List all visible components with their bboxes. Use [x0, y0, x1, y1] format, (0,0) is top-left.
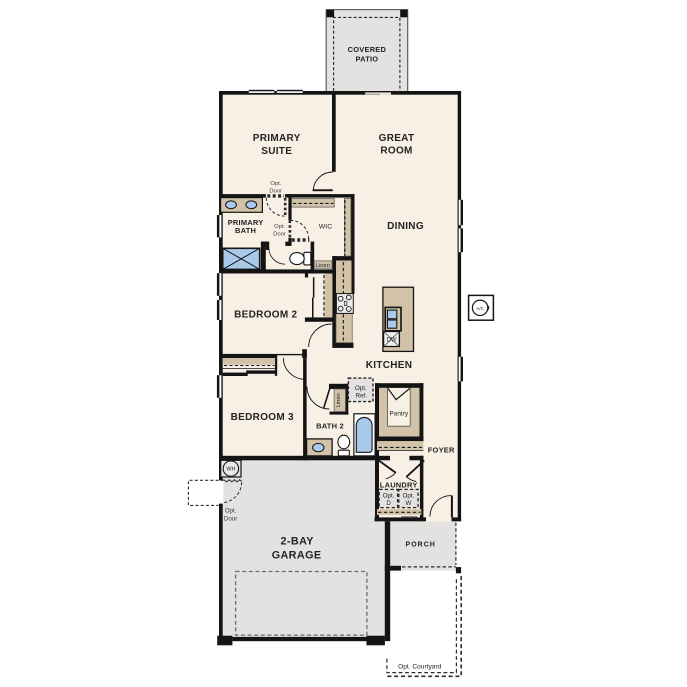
svg-text:Opt. Courtyard: Opt. Courtyard — [398, 663, 442, 670]
svg-text:D: D — [386, 500, 391, 507]
svg-text:BEDROOM 2: BEDROOM 2 — [234, 310, 297, 321]
svg-text:WH: WH — [226, 467, 235, 473]
svg-text:A/C: A/C — [476, 306, 484, 311]
svg-text:PORCH: PORCH — [406, 541, 436, 548]
svg-text:DINING: DINING — [387, 221, 424, 232]
svg-text:Opt.: Opt. — [274, 224, 285, 230]
svg-text:COVERED: COVERED — [348, 45, 387, 54]
svg-text:Door: Door — [269, 188, 282, 194]
svg-text:DW: DW — [387, 337, 397, 343]
svg-text:W: W — [405, 500, 411, 507]
svg-text:Opt.: Opt. — [225, 508, 237, 515]
svg-text:Opt.: Opt. — [270, 181, 281, 187]
svg-text:GARAGE: GARAGE — [272, 550, 322, 562]
svg-text:Ref.: Ref. — [356, 393, 368, 400]
svg-text:Linen: Linen — [316, 263, 330, 269]
svg-text:FOYER: FOYER — [428, 446, 455, 455]
svg-text:Opt.: Opt. — [383, 492, 395, 499]
svg-text:ROOM: ROOM — [380, 146, 412, 157]
svg-text:PRIMARY: PRIMARY — [253, 133, 301, 144]
svg-text:Opt.: Opt. — [403, 492, 415, 499]
svg-text:BEDROOM 3: BEDROOM 3 — [231, 412, 294, 423]
svg-text:SUITE: SUITE — [261, 146, 292, 157]
svg-text:KITCHEN: KITCHEN — [366, 360, 413, 371]
svg-text:Door: Door — [224, 515, 237, 522]
svg-text:GREAT: GREAT — [379, 133, 415, 144]
svg-text:PATIO: PATIO — [355, 54, 378, 63]
svg-text:2-BAY: 2-BAY — [280, 536, 314, 548]
svg-text:Door: Door — [273, 231, 286, 237]
svg-text:LAUNDRY: LAUNDRY — [380, 480, 418, 489]
svg-text:Opt.: Opt. — [355, 385, 367, 392]
svg-text:BATH: BATH — [235, 226, 256, 235]
svg-text:BATH 2: BATH 2 — [316, 421, 344, 430]
svg-text:WIC: WIC — [319, 223, 332, 230]
svg-text:Linen: Linen — [336, 393, 342, 407]
svg-text:Pantry: Pantry — [390, 411, 409, 418]
